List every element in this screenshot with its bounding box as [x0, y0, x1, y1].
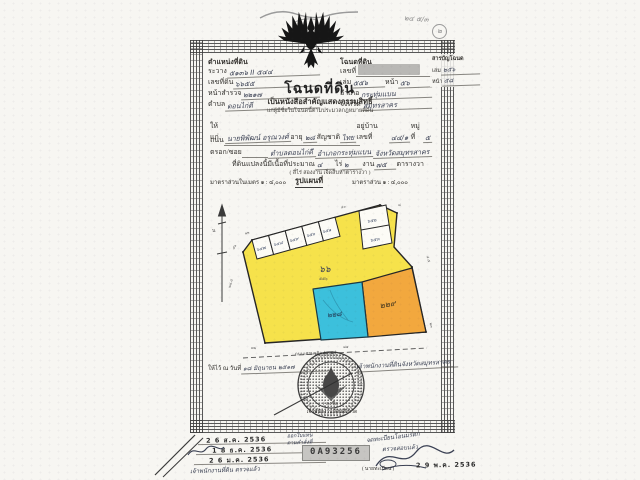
tick-1: ๔๖: [231, 243, 237, 250]
locality-province: จังหวัดสมุทรสาคร: [373, 148, 432, 159]
field-volume-label: เล่ม: [340, 77, 351, 88]
land-title-deed-scan: ๒๔ ๕/๓ ๒ ตำแหน่งที่ดิน ระวาง ๕๑๓๖ II ๕๔๔…: [0, 0, 640, 480]
frame-right-border: [441, 40, 454, 433]
deed-index-box: สารบัญโฉนด เล่ม ๒๕๖ หน้า ๕๘: [430, 54, 482, 87]
area-words: ( สี่ไร่ สองงาน เจ็ดสิบห้าตารางวา ): [255, 169, 405, 177]
moo-value: ๕: [423, 134, 433, 143]
field-amphoe-label: อำเภอ: [340, 88, 359, 99]
locality-line: ตรอก/ซอย ตำบลดอนไก่ดี อำเภอกระทุ่มแบน จั…: [210, 147, 432, 158]
tick-6: ๒๓: [429, 323, 434, 329]
field-rawang: ระวาง ๕๑๓๖ II ๕๔๔: [208, 66, 320, 77]
tick-4: ๘: [398, 203, 401, 207]
moo-label: หมู่ที่: [411, 121, 423, 143]
right-date-stamp: 2 9 พ.ค. 2536: [416, 459, 477, 470]
parcel-blue-label: ๒๒๘: [327, 310, 344, 320]
address-value: ๔๔/๑: [389, 134, 411, 144]
tick-9: ๒๘.๕: [228, 278, 234, 288]
index-page-value: ๕๘: [442, 76, 480, 86]
index-volume-row: เล่ม ๒๕๖: [432, 66, 480, 75]
field-tambon-label: ตำบล: [208, 99, 225, 110]
address-label: อยู่บ้านเลขที่: [356, 121, 389, 143]
soi-label: ตรอก/ซอย: [210, 147, 242, 158]
parcel-main-label: ๖๖: [319, 265, 332, 275]
scale-left: มาตราส่วนในเมตร ๑ : ๔,๐๐๐: [210, 177, 286, 187]
parcel-main-sub-label: ๕๕๖: [319, 276, 328, 281]
footer-left-note: เจ้าพนักงานที่ดิน ตรวจแล้ว: [190, 464, 260, 476]
field-deed-no-label: เลขที่: [340, 66, 356, 77]
field-survey-page-label: หน้าสำรวจ: [208, 88, 241, 99]
left-signature-scribble: [186, 443, 226, 459]
index-volume-value: ๒๕๖: [441, 65, 480, 75]
soi-blank: [242, 149, 268, 158]
corner-circled-number: ๒: [432, 24, 447, 39]
field-parcel-no-label: เลขที่ดิน: [208, 77, 233, 88]
serial-number-stamp: 0A93256: [302, 445, 370, 461]
field-province-label: จังหวัด: [340, 99, 361, 110]
field-volume: เล่ม ๕๕๖ หน้า ๕๖: [340, 77, 432, 88]
tick-5: ๔.๕: [426, 255, 432, 263]
road-line: ถนน: [210, 135, 360, 146]
road-label: ถนน: [210, 135, 224, 146]
map-section-title: รูปแผนที่: [295, 175, 323, 188]
index-title: สารบัญโฉนด: [432, 55, 480, 63]
road-blank: [224, 137, 360, 146]
locality-amphoe: อำเภอกระทุ่มแบน: [315, 148, 373, 159]
field-page-label: หน้า: [385, 77, 398, 88]
tick-2: ๑๒: [244, 230, 250, 235]
index-page-row: หน้า ๕๘: [432, 77, 480, 86]
garuda-emblem-icon: [275, 6, 347, 74]
footer-right-caption: ( นายทะเบียน ): [362, 465, 394, 473]
north-label: น: [212, 228, 216, 234]
field-province: จังหวัด สมุทรสาคร: [340, 99, 432, 110]
issue-date-label: ให้ไว้ ณ วันที่: [208, 363, 241, 373]
seal-caption2: เจ้าพนักงานที่ดินจังหวัด: [288, 408, 376, 416]
deed-no-redaction: [358, 64, 420, 75]
field-rawang-label: ระวาง: [208, 66, 227, 77]
index-page-label: หน้า: [432, 78, 442, 86]
corner-pencil-note: ๒๔ ๕/๓: [404, 13, 429, 26]
index-volume-label: เล่ม: [432, 67, 441, 75]
tick-8: ๗๒: [251, 346, 257, 350]
seal-caption1: ( ลงชื่อ ): [300, 400, 364, 408]
locality-tambon: ตำบลดอนไก่ดี: [268, 148, 316, 159]
north-arrow: [217, 205, 227, 302]
tick-3: ๔๐: [340, 204, 346, 209]
scale-right: มาตราส่วน ๑ : ๔,๐๐๐: [352, 177, 408, 187]
field-province-value: สมุทรสาคร: [360, 100, 432, 111]
field-amphoe: อำเภอ กระทุ่มแบน: [340, 88, 432, 99]
